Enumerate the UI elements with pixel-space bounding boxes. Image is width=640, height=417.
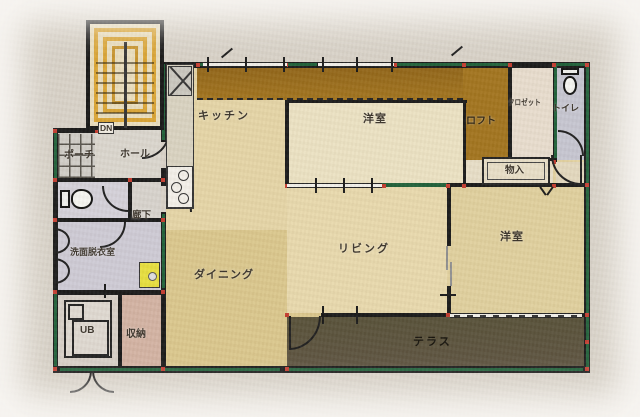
wall-closet-left bbox=[508, 62, 512, 160]
window-tick bbox=[356, 306, 358, 324]
hall-label: ホール bbox=[120, 145, 150, 160]
wall-green-segment bbox=[54, 292, 57, 366]
wall-green-segment bbox=[395, 63, 508, 66]
window-tick bbox=[283, 57, 285, 72]
dining-floor bbox=[166, 230, 287, 366]
cross-mark bbox=[98, 290, 112, 292]
floor-plan-photo: キッチン 洋室 ロフト クロゼット トイレ 物入 ポーチ ホール DN 廊下 洗… bbox=[0, 0, 640, 417]
leader-mark bbox=[451, 46, 463, 57]
living-label: リビング bbox=[338, 240, 390, 256]
door-leaf bbox=[580, 155, 582, 185]
terrace-label: テラス bbox=[413, 333, 452, 349]
loft-label: ロフト bbox=[466, 112, 496, 127]
staircase bbox=[86, 20, 164, 130]
window-tick bbox=[245, 57, 247, 72]
window-tick bbox=[322, 57, 324, 72]
washroom-label: 洗面脱衣室 bbox=[70, 245, 115, 258]
loft-floor bbox=[197, 66, 508, 100]
casement-window-arc bbox=[70, 371, 92, 393]
washing-machine bbox=[139, 262, 160, 288]
window-tick bbox=[391, 57, 393, 72]
sliding-door bbox=[450, 262, 452, 286]
wall-bath-storage bbox=[118, 292, 122, 368]
window-tick bbox=[207, 57, 209, 72]
porch-label: ポーチ bbox=[64, 146, 94, 161]
toilet-bowl-icon bbox=[60, 190, 70, 208]
storage-small-label: 物入 bbox=[505, 162, 524, 176]
window-tick bbox=[343, 178, 345, 193]
closet-floor bbox=[511, 66, 553, 158]
door-leaf bbox=[289, 316, 291, 350]
closet-label: クロゼット bbox=[508, 97, 541, 108]
unit-bath-label: UB bbox=[80, 325, 94, 336]
storage-label: 収納 bbox=[126, 325, 146, 340]
window-tick bbox=[356, 57, 358, 72]
wall-bedroom-top-left bbox=[285, 100, 289, 186]
stove bbox=[167, 166, 193, 208]
kitchen-label: キッチン bbox=[198, 107, 250, 123]
bedroom-right-label: 洋室 bbox=[500, 228, 524, 244]
wall-green-segment bbox=[553, 63, 585, 66]
wall-bedroom-top-top bbox=[285, 100, 467, 103]
wall-porch-toilet bbox=[53, 178, 166, 182]
toilet-bowl-icon bbox=[563, 76, 577, 95]
wall-green-segment bbox=[586, 64, 589, 370]
wall-living-bedroom bbox=[447, 186, 451, 246]
toilet-bowl-icon bbox=[71, 189, 93, 209]
toilet-bowl-icon bbox=[561, 68, 579, 75]
casement-window-arc bbox=[92, 371, 114, 393]
window bbox=[287, 183, 382, 188]
corridor-label: 廊下 bbox=[132, 207, 151, 221]
bedroom-right-floor bbox=[449, 186, 584, 313]
wall-green-segment bbox=[287, 368, 583, 371]
window-tick bbox=[371, 178, 373, 193]
leader-mark bbox=[221, 48, 233, 59]
stairs-dn-label: DN bbox=[98, 122, 114, 134]
window-tick bbox=[322, 306, 324, 324]
dining-label: ダイニング bbox=[194, 266, 254, 282]
toilet-upper-label: トイレ bbox=[552, 101, 579, 114]
wall-green-segment bbox=[162, 214, 165, 288]
cross-mark bbox=[440, 294, 456, 296]
sliding-door bbox=[446, 246, 448, 270]
wall-green-segment bbox=[382, 183, 447, 187]
kitchen-sink bbox=[168, 66, 192, 96]
window-tick bbox=[315, 178, 317, 193]
bedroom-top-label: 洋室 bbox=[363, 110, 387, 126]
window-wide bbox=[450, 313, 582, 318]
wall-green-segment bbox=[54, 130, 57, 178]
